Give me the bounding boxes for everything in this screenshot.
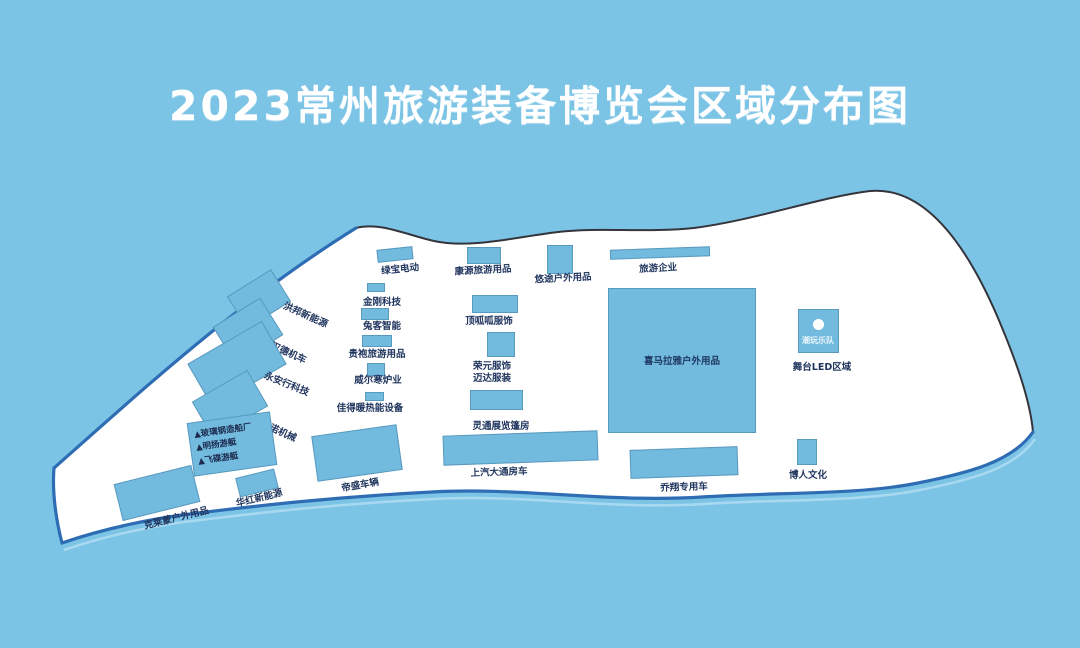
tuke-smart-label: 兔客智能 [363,318,401,332]
boren-culture-label: 博人文化 [789,467,827,481]
boren-culture-booth [797,439,817,465]
saic-maxus-rv-label: 上汽大通房车 [470,463,527,479]
boat-makers-booth: ▲玻璃钢造船厂▲明扬游艇▲飞碟游艇 [187,411,278,476]
stage-led-label: 潮玩乐队 [799,310,838,352]
yonganxing-tech-label: 永安行科技 [262,368,311,399]
lingtong-tents-label: 灵通展览篷房 [472,418,529,432]
guipao-travel-goods-label: 贵袍旅游用品 [348,346,405,360]
boat-makers-list: ▲玻璃钢造船厂▲明扬游艇▲飞碟游艇 [188,413,276,476]
jingang-tech-booth [367,283,385,292]
rongyuan-maida-booth [487,332,515,357]
tourism-enterprises-label: 旅游企业 [639,259,678,275]
qiaoxiang-vehicles-label: 乔翔专用车 [660,478,708,494]
saic-maxus-rv-booth [442,430,598,465]
qiaoxiang-vehicles-booth [630,446,739,479]
ximalaya-outdoor-booth: 喜马拉雅户外用品 [608,288,756,433]
disheng-vehicles-booth [311,424,403,482]
expo-map-page: 2023常州旅游装备博览会区域分布图 洪邦新能源汉德机车永安行科技康诺机械▲玻璃… [0,0,1080,648]
dingguagua-apparel-label: 顶呱呱服饰 [465,313,513,327]
stage-led-caption: 舞台LED区域 [793,359,851,373]
lingtong-tents-booth [470,390,523,410]
ximalaya-outdoor-label: 喜马拉雅户外用品 [609,289,755,432]
stage-led-booth: 潮玩乐队 [798,309,839,353]
dingguagua-apparel-booth [472,295,518,313]
tourism-enterprises-booth [610,246,710,259]
rongyuan-maida-label-1: 迈达服装 [473,370,511,384]
jingang-tech-label: 金刚科技 [363,294,401,308]
jiadenuan-thermal-label: 佳得暖热能设备 [337,400,404,414]
youtu-outdoor-label: 悠途户外用品 [534,269,592,286]
kangyuan-travel-goods-label: 康源旅游用品 [454,261,512,278]
lvbao-electric-label: 绿宝电动 [380,259,419,277]
booth-layer: 洪邦新能源汉德机车永安行科技康诺机械▲玻璃钢造船厂▲明扬游艇▲飞碟游艇克莱蒙户外… [0,0,1080,648]
hongbang-new-energy-label: 洪邦新能源 [281,298,330,330]
weierhan-stoves-label: 威尔寒炉业 [354,372,402,386]
